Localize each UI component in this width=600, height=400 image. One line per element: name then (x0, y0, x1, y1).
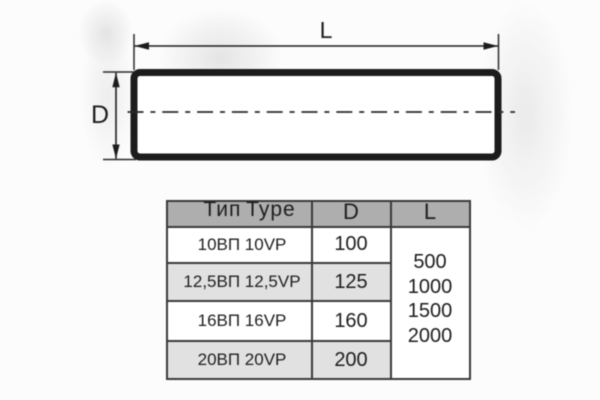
svg-text:D: D (91, 101, 109, 129)
svg-text:L: L (320, 17, 333, 43)
